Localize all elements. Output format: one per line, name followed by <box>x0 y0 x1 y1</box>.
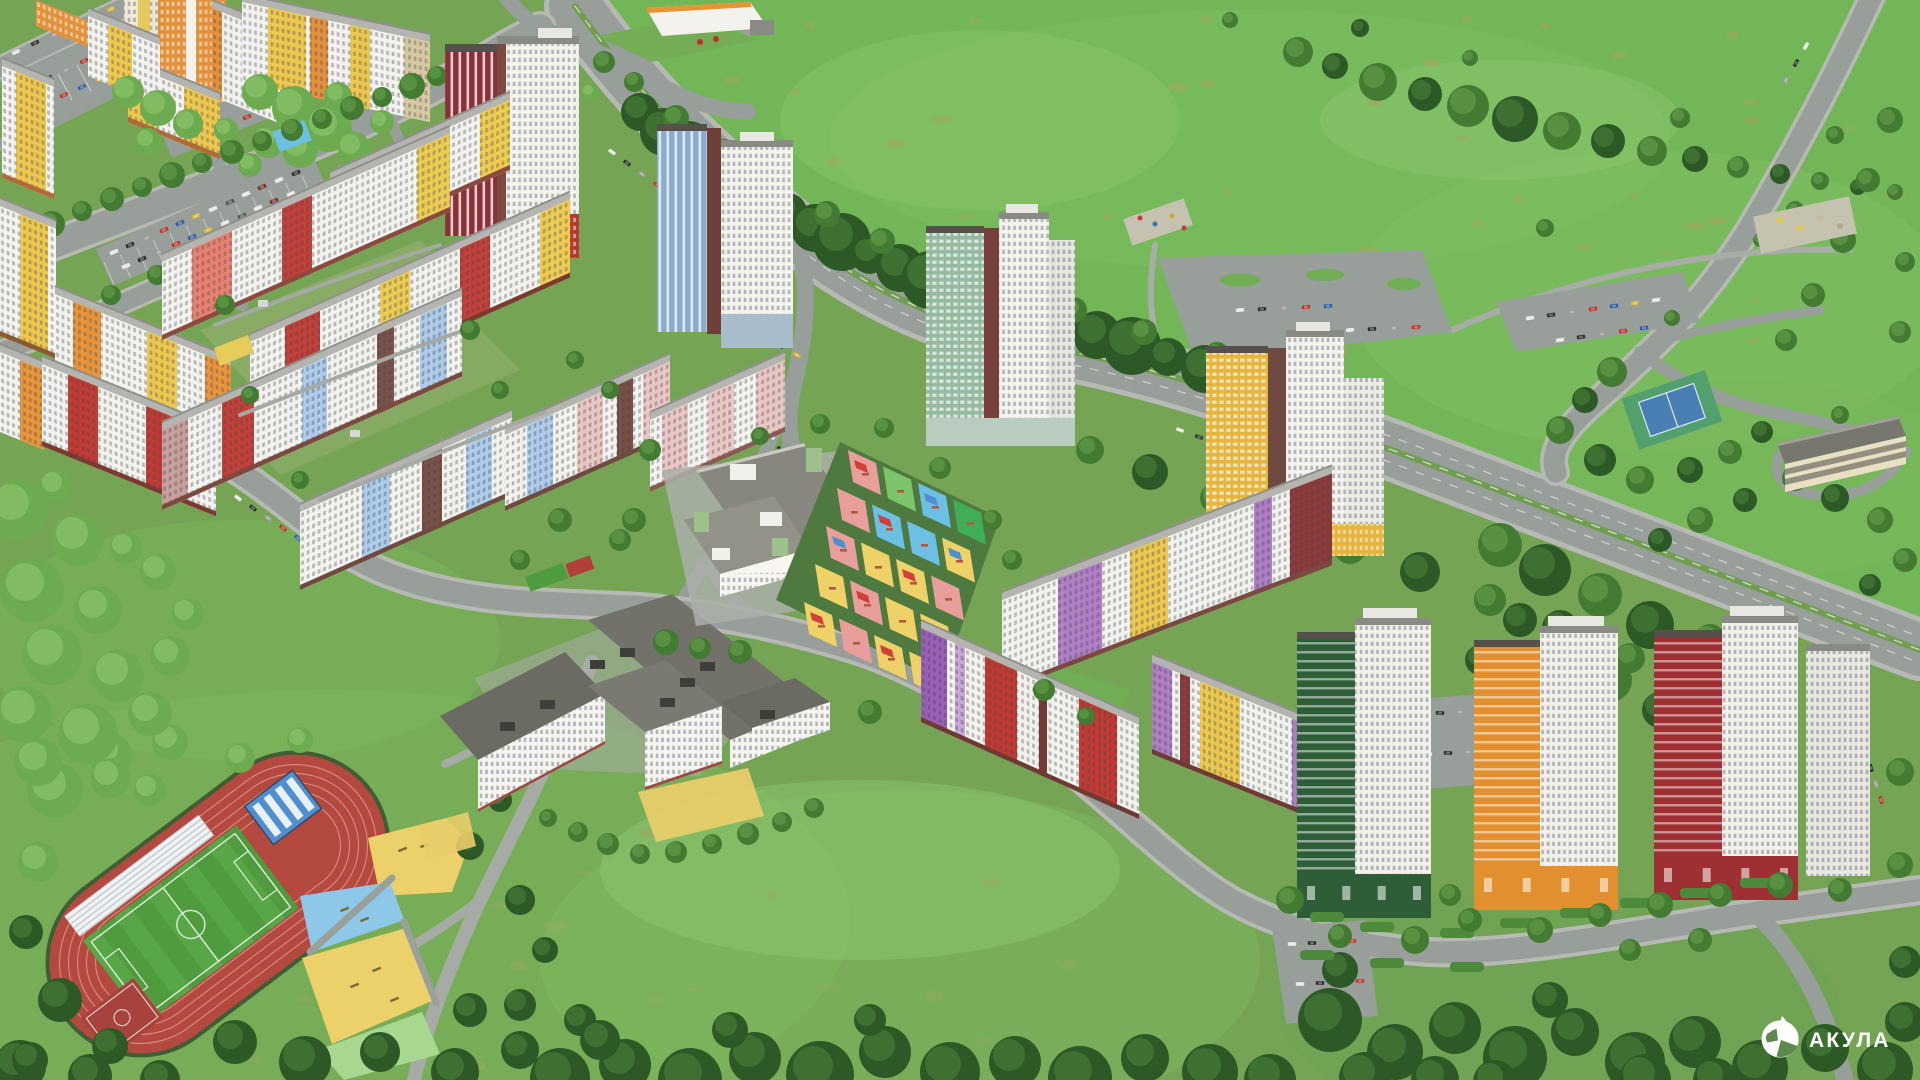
svg-text:АКУЛА: АКУЛА <box>1809 1029 1891 1052</box>
